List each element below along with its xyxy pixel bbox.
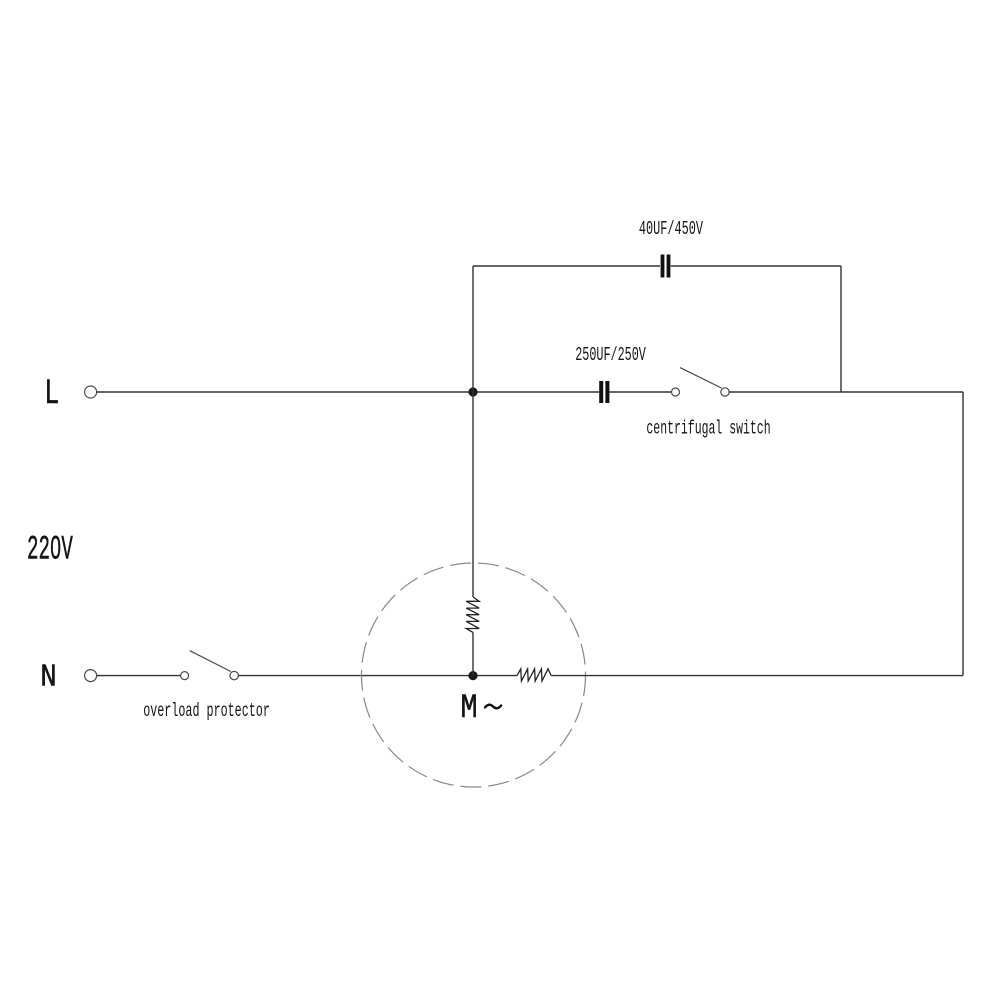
svg-text:M: M: [461, 690, 478, 728]
svg-text:N: N: [40, 659, 56, 695]
svg-text:overload protector: overload protector: [143, 700, 270, 722]
svg-text:220V: 220V: [27, 531, 73, 569]
svg-text:250UF/250V: 250UF/250V: [575, 344, 646, 366]
svg-text:L: L: [44, 374, 59, 414]
svg-text:40UF/450V: 40UF/450V: [639, 218, 703, 240]
svg-text:centrifugal switch: centrifugal switch: [646, 418, 770, 440]
